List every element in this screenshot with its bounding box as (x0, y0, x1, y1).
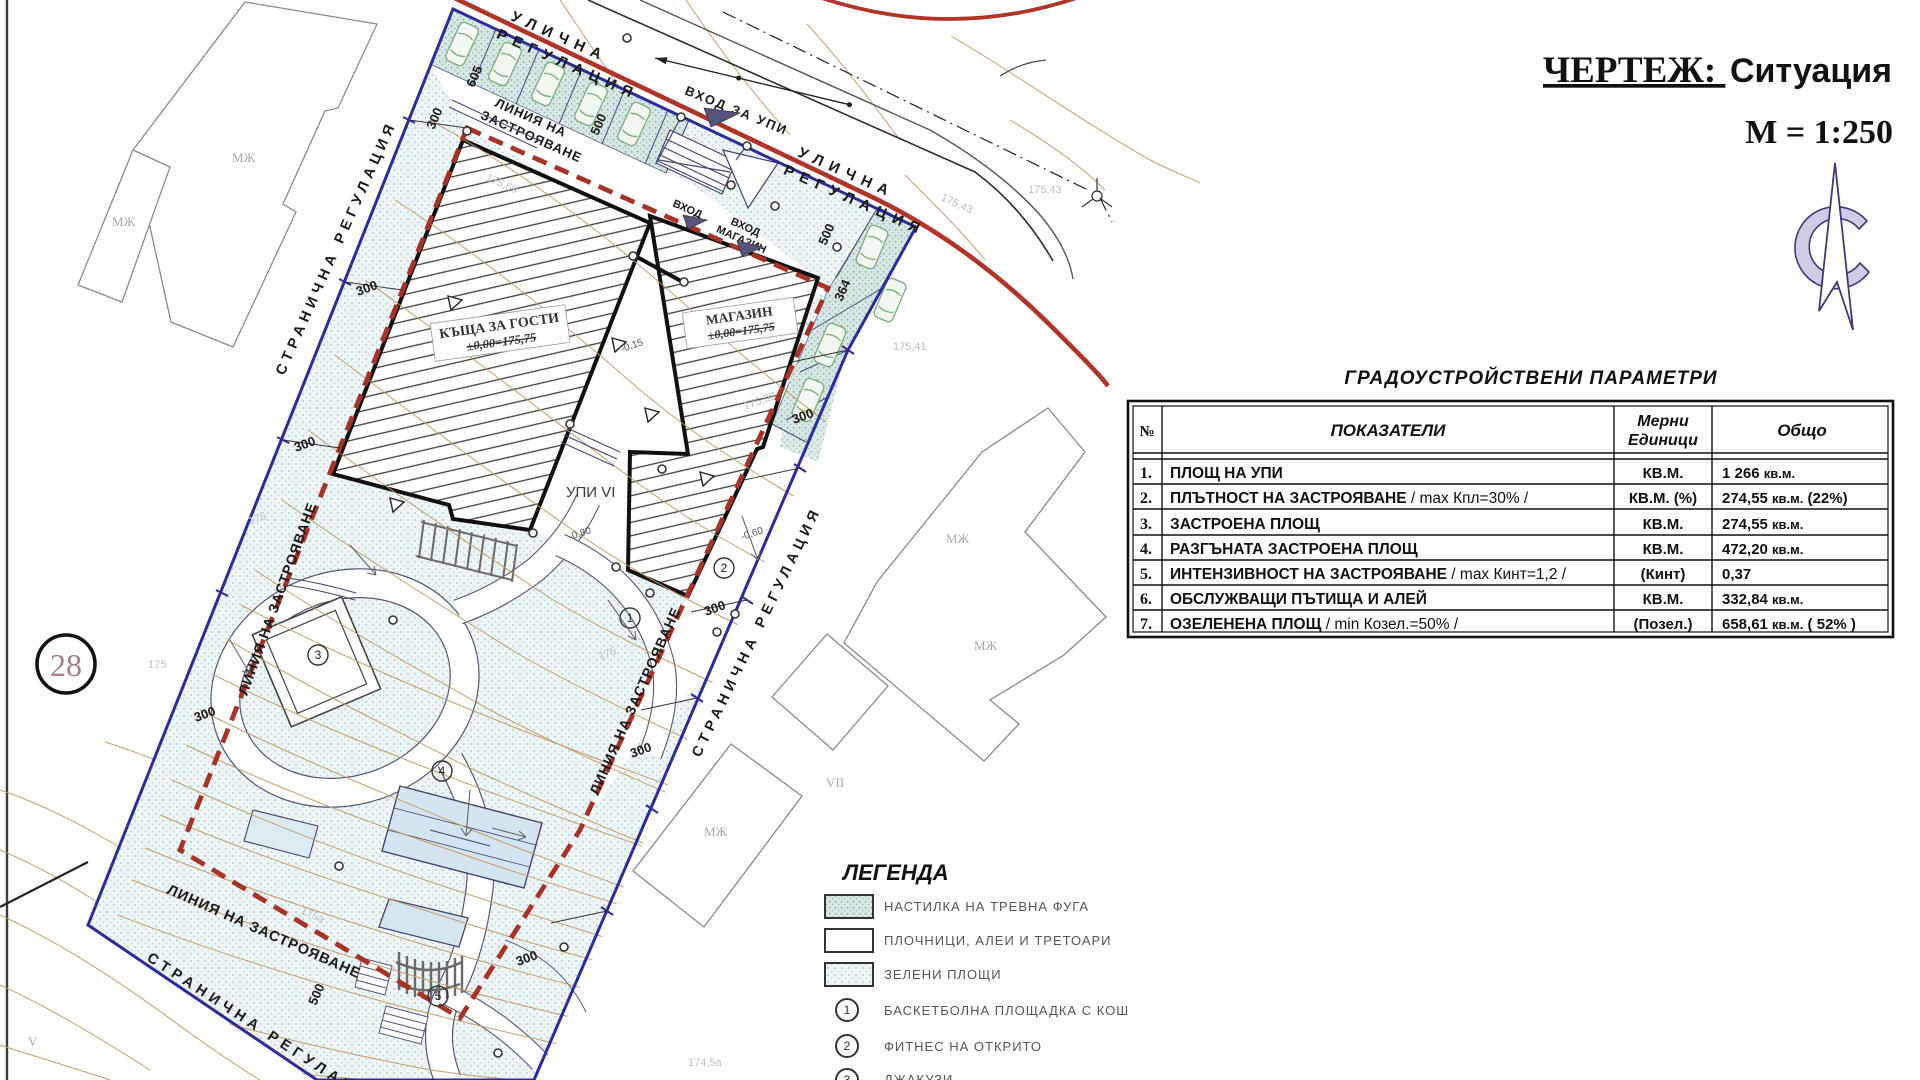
svg-text:175: 175 (148, 659, 166, 671)
svg-text:РАЗГЪНАТА ЗАСТРОЕНА ПЛОЩ: РАЗГЪНАТА ЗАСТРОЕНА ПЛОЩ (1170, 541, 1418, 558)
svg-text:332,84 кв.м.: 332,84 кв.м. (1722, 591, 1803, 608)
svg-text:5.: 5. (1140, 566, 1152, 583)
svg-text:472,20 кв.м.: 472,20 кв.м. (1722, 541, 1803, 558)
svg-text:КВ.М.: КВ.М. (1643, 541, 1684, 558)
svg-text:6.: 6. (1140, 591, 1152, 608)
svg-text:2.: 2. (1140, 490, 1152, 507)
svg-text:Мерни: Мерни (1637, 413, 1689, 430)
svg-text:КВ.М.: КВ.М. (1643, 465, 1684, 482)
svg-text:1: 1 (627, 611, 634, 625)
svg-text:Ситуация: Ситуация (1730, 52, 1892, 90)
svg-text:ПОКАЗАТЕЛИ: ПОКАЗАТЕЛИ (1331, 421, 1447, 440)
svg-text:(Кинт): (Кинт) (1641, 566, 1686, 583)
svg-text:1: 1 (844, 1003, 851, 1017)
svg-text:4: 4 (439, 764, 446, 778)
svg-text:ПЛОЧНИЦИ, АЛЕИ И ТРЕТОАРИ: ПЛОЧНИЦИ, АЛЕИ И ТРЕТОАРИ (884, 933, 1112, 948)
svg-text:VII: VII (826, 775, 844, 790)
svg-text:№: № (1139, 424, 1154, 440)
svg-text:3: 3 (315, 648, 322, 662)
svg-text:28: 28 (50, 647, 82, 683)
svg-text:ПЛОЩ НА УПИ: ПЛОЩ НА УПИ (1170, 465, 1283, 482)
svg-text:ЧЕРТЕЖ:: ЧЕРТЕЖ: (1543, 50, 1725, 91)
svg-text:БАСКЕТБОЛНА ПЛОЩАДКА С КОШ: БАСКЕТБОЛНА ПЛОЩАДКА С КОШ (884, 1003, 1129, 1018)
svg-text:М = 1:250: М = 1:250 (1745, 114, 1893, 151)
svg-text:V: V (28, 1034, 38, 1049)
svg-text:5: 5 (435, 989, 442, 1003)
svg-text:ЗЕЛЕНИ ПЛОЩИ: ЗЕЛЕНИ ПЛОЩИ (884, 967, 1002, 982)
svg-text:ИНТЕНЗИВНОСТ НА ЗАСТРОЯВАНЕ /: ИНТЕНЗИВНОСТ НА ЗАСТРОЯВАНЕ / max Кинт=1… (1170, 566, 1567, 583)
svg-text:3.: 3. (1140, 516, 1152, 533)
svg-text:КВ.М. (%): КВ.М. (%) (1629, 490, 1697, 507)
svg-text:0,37: 0,37 (1722, 566, 1751, 583)
svg-text:ПЛЪТНОСТ НА ЗАСТРОЯВАНЕ / max: ПЛЪТНОСТ НА ЗАСТРОЯВАНЕ / max Кпл=30% / (1170, 490, 1529, 507)
svg-text:ДЖАКУЗИ: ДЖАКУЗИ (884, 1072, 953, 1080)
svg-text:1 266 кв.м.: 1 266 кв.м. (1722, 465, 1795, 482)
svg-text:(Позел.): (Позел.) (1633, 616, 1692, 633)
svg-text:ЗАСТРОЕНА ПЛОЩ: ЗАСТРОЕНА ПЛОЩ (1170, 516, 1320, 533)
svg-text:ОБСЛУЖВАЩИ ПЪТИЩА И АЛЕЙ: ОБСЛУЖВАЩИ ПЪТИЩА И АЛЕЙ (1170, 590, 1427, 608)
svg-text:ФИТНЕС НА ОТКРИТО: ФИТНЕС НА ОТКРИТО (884, 1039, 1042, 1054)
svg-text:175,41: 175,41 (893, 341, 927, 353)
svg-text:ОЗЕЛЕНЕНА ПЛОЩ / min Козел.=50: ОЗЕЛЕНЕНА ПЛОЩ / min Козел.=50% / (1170, 616, 1459, 633)
svg-text:МЖ: МЖ (232, 150, 256, 165)
svg-text:МЖ: МЖ (704, 824, 728, 839)
svg-text:ГРАДОУСТРОЙСТВЕНИ ПАРАМЕТРИ: ГРАДОУСТРОЙСТВЕНИ ПАРАМЕТРИ (1344, 367, 1717, 389)
svg-text:МЖ: МЖ (112, 214, 136, 229)
svg-text:2: 2 (721, 561, 728, 575)
svg-text:МЖ: МЖ (946, 531, 970, 546)
svg-text:174,5a: 174,5a (688, 1057, 723, 1069)
svg-text:658,61 кв.м. ( 52% ): 658,61 кв.м. ( 52% ) (1722, 616, 1856, 633)
svg-text:Единици: Единици (1628, 432, 1698, 449)
svg-text:ЛЕГЕНДА: ЛЕГЕНДА (841, 860, 949, 885)
svg-text:1.: 1. (1140, 465, 1152, 482)
svg-text:3: 3 (844, 1073, 851, 1080)
svg-text:2: 2 (844, 1039, 851, 1053)
svg-text:МЖ: МЖ (974, 638, 998, 653)
svg-text:175,43: 175,43 (1028, 184, 1062, 196)
svg-text:7.: 7. (1140, 616, 1152, 633)
svg-text:УПИ VI: УПИ VI (566, 484, 615, 501)
svg-text:КВ.М.: КВ.М. (1643, 516, 1684, 533)
svg-text:КВ.М.: КВ.М. (1643, 591, 1684, 608)
svg-text:Общо: Общо (1777, 421, 1827, 440)
svg-text:НАСТИЛКА НА ТРЕВНА ФУГА: НАСТИЛКА НА ТРЕВНА ФУГА (884, 899, 1089, 914)
svg-text:274,55 кв.м. (22%): 274,55 кв.м. (22%) (1722, 490, 1848, 507)
svg-text:274,55 кв.м.: 274,55 кв.м. (1722, 516, 1803, 533)
svg-text:4.: 4. (1140, 541, 1152, 558)
